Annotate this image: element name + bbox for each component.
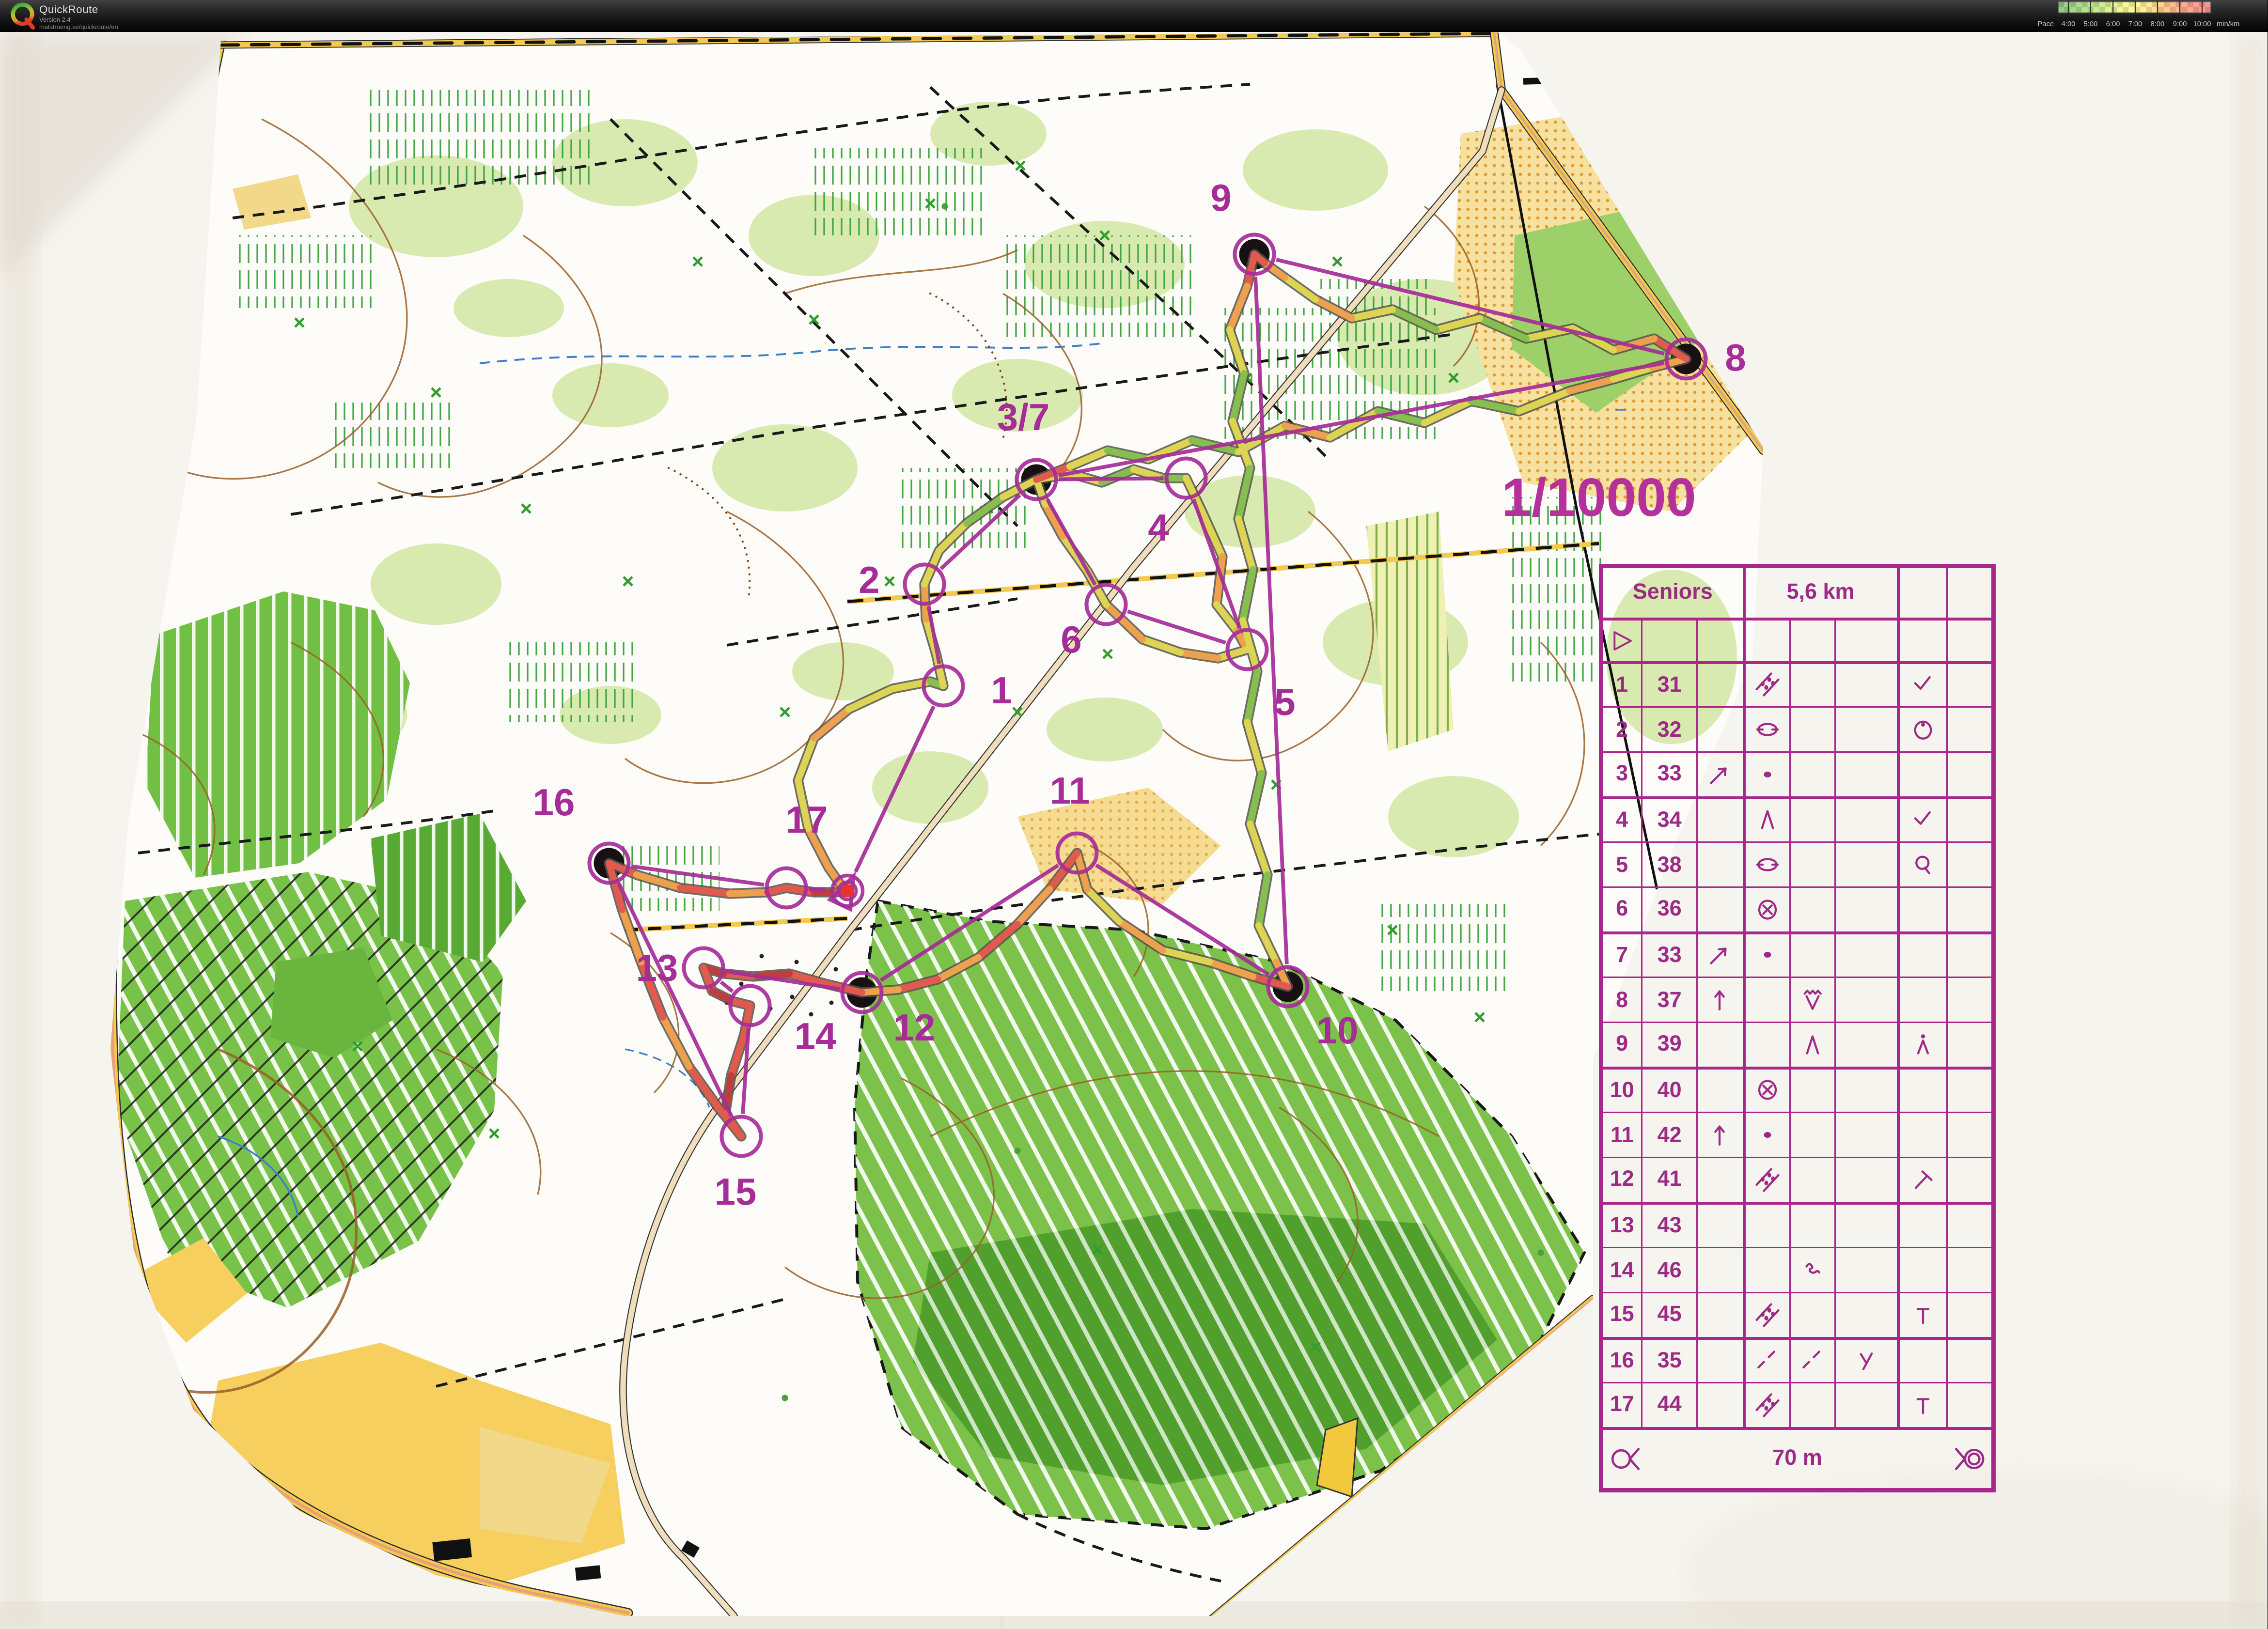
control-number-label: 14 <box>795 1015 837 1057</box>
control-order: 16 <box>1601 1338 1642 1383</box>
scanned-map-paper: 123/74568910111213141516171/10000 Senior… <box>0 32 2268 1629</box>
sym-reentrant-icon <box>1752 806 1782 835</box>
sym-arrow-ne-icon <box>1705 941 1735 970</box>
pace-tick-label: 8:00 <box>2151 20 2165 28</box>
card-row: 11 42 <box>1601 1113 1994 1158</box>
card-row: 7 33 <box>1601 932 1994 977</box>
control-order: 1 <box>1601 662 1642 707</box>
control-order: 5 <box>1601 842 1642 887</box>
pace-label: Pace <box>2038 20 2054 28</box>
sym-stony-ground-icon <box>1752 1300 1782 1329</box>
control-code: 40 <box>1642 1068 1697 1113</box>
control-code: 44 <box>1642 1383 1697 1428</box>
control-card-table: Seniors 5,6 km 1 31 2 32 3 33 <box>1599 564 1996 1492</box>
card-row: 5 38 <box>1601 842 1994 887</box>
control-code: 46 <box>1642 1248 1697 1293</box>
card-row: 2 32 <box>1601 707 1994 752</box>
sym-depression-icon <box>1752 715 1782 744</box>
sym-dash-ne-icon <box>1798 1346 1827 1375</box>
control-order: 8 <box>1601 977 1642 1023</box>
control-number-label: 13 <box>636 946 678 989</box>
pace-unit-label: min/km <box>2217 20 2240 28</box>
sym-stony-ground-icon <box>1752 1390 1782 1419</box>
sym-north-t-icon <box>1908 1300 1937 1329</box>
sym-junction-icon <box>1908 670 1937 699</box>
control-code: 33 <box>1642 932 1697 977</box>
control-code: 41 <box>1642 1158 1697 1203</box>
control-number-label: 3/7 <box>997 396 1049 438</box>
sym-knoll-icon <box>1752 1120 1782 1149</box>
control-number-label: 17 <box>786 798 828 841</box>
control-number-label: 6 <box>1061 618 1081 661</box>
control-order: 9 <box>1601 1023 1642 1068</box>
card-row: 4 34 <box>1601 797 1994 842</box>
sym-stony-ground-icon <box>1752 670 1782 699</box>
card-row: 3 33 <box>1601 752 1994 797</box>
finish-distance: 70 m <box>1772 1448 1822 1470</box>
control-order: 17 <box>1601 1383 1642 1428</box>
control-number-label: 5 <box>1274 681 1295 723</box>
sym-arrow-n-icon <box>1705 1120 1735 1149</box>
control-code: 35 <box>1642 1338 1697 1383</box>
card-row: 9 39 <box>1601 1023 1994 1068</box>
sym-arrow-n-icon <box>1705 985 1735 1014</box>
sym-knoll-icon <box>1752 760 1782 789</box>
sym-chevron-finish-icon <box>1949 1443 1987 1474</box>
control-order: 4 <box>1601 797 1642 842</box>
card-row: 6 36 <box>1601 887 1994 932</box>
control-number-label: 8 <box>1725 336 1746 379</box>
pace-tick-label: 9:00 <box>2174 20 2188 28</box>
control-order: 15 <box>1601 1293 1642 1338</box>
sym-reentrant-icon <box>1798 1030 1827 1059</box>
control-order: 14 <box>1601 1248 1642 1293</box>
control-number-label: 2 <box>859 559 879 601</box>
control-code: 34 <box>1642 797 1697 842</box>
pace-tick-label: 5:00 <box>2084 20 2098 28</box>
pace-tick-label: 10:00 <box>2194 20 2212 28</box>
control-code: 33 <box>1642 752 1697 797</box>
card-row: 13 43 <box>1601 1203 1994 1248</box>
control-code: 32 <box>1642 707 1697 752</box>
control-number-label: 12 <box>893 1006 936 1049</box>
card-row: 10 40 <box>1601 1068 1994 1113</box>
control-code: 37 <box>1642 977 1697 1023</box>
card-row: 8 37 <box>1601 977 1994 1023</box>
card-row: 17 44 <box>1601 1383 1994 1428</box>
title-bar: QuickRoute Version 2.4 matstroeng.se/qui… <box>0 0 2268 32</box>
sym-pit-icon <box>1908 715 1937 744</box>
pace-tick-label: 7:00 <box>2129 20 2143 28</box>
map-scale-text: 1/10000 <box>1502 467 1696 527</box>
control-order: 2 <box>1601 707 1642 752</box>
control-code: 31 <box>1642 662 1697 707</box>
sym-depression-icon <box>1752 850 1782 879</box>
card-start-row <box>1601 619 1994 662</box>
sym-cairn-icon <box>1908 1030 1937 1059</box>
card-row: 12 41 <box>1601 1158 1994 1203</box>
sym-knoll-icon <box>1752 941 1782 970</box>
control-code: 38 <box>1642 842 1697 887</box>
sym-circle-chevron-icon <box>1608 1443 1645 1474</box>
control-order: 7 <box>1601 932 1642 977</box>
quickroute-logo-icon <box>9 1 38 31</box>
sym-crossing-icon <box>1752 895 1782 924</box>
course-class: Seniors <box>1601 566 1744 619</box>
control-code: 36 <box>1642 887 1697 932</box>
card-row: 15 45 <box>1601 1293 1994 1338</box>
card-footer: 70 m <box>1601 1428 1994 1490</box>
sym-water-squiggle-icon <box>1798 1256 1827 1285</box>
sym-dash-ne-icon <box>1752 1346 1782 1375</box>
sym-spur-icon <box>1908 850 1937 879</box>
sym-junction-icon <box>1908 806 1937 835</box>
card-row: 16 35 <box>1601 1338 1994 1383</box>
control-order: 12 <box>1601 1158 1642 1203</box>
sym-y-branch-icon <box>1850 1346 1882 1375</box>
app-title: QuickRoute <box>39 3 98 16</box>
control-number-label: 10 <box>1316 1009 1359 1052</box>
app-version: Version 2.4 <box>39 16 71 23</box>
control-number-label: 9 <box>1210 176 1231 219</box>
control-code: 43 <box>1642 1203 1697 1248</box>
course-distance: 5,6 km <box>1744 566 1898 619</box>
card-row: 1 31 <box>1601 662 1994 707</box>
control-code: 42 <box>1642 1113 1697 1158</box>
control-number-label: 4 <box>1148 506 1169 549</box>
sym-bent-t-icon <box>1908 1165 1937 1194</box>
control-code: 39 <box>1642 1023 1697 1068</box>
control-number-label: 1 <box>991 669 1012 712</box>
control-number-label: 16 <box>533 781 575 823</box>
sym-arrow-ne-icon <box>1705 760 1735 789</box>
quickroute-window: QuickRoute Version 2.4 matstroeng.se/qui… <box>0 0 2268 1629</box>
sym-north-t-icon <box>1908 1390 1937 1419</box>
app-url: matstroeng.se/quickroute/en <box>39 24 118 31</box>
control-order: 11 <box>1601 1113 1642 1158</box>
control-order: 3 <box>1601 752 1642 797</box>
control-order: 10 <box>1601 1068 1642 1113</box>
sym-start-triangle-icon <box>1609 627 1635 653</box>
pace-tick-label: 6:00 <box>2107 20 2121 28</box>
control-code: 45 <box>1642 1293 1697 1338</box>
card-row: 14 46 <box>1601 1248 1994 1293</box>
control-order: 13 <box>1601 1203 1642 1248</box>
pace-tick-label: 4:00 <box>2062 20 2076 28</box>
sym-stony-ground-icon <box>1752 1165 1782 1194</box>
control-order: 6 <box>1601 887 1642 932</box>
control-number-label: 11 <box>1050 769 1090 812</box>
control-number-label: 15 <box>715 1170 757 1213</box>
card-header: Seniors 5,6 km <box>1601 566 1994 619</box>
sym-crossing-icon <box>1752 1076 1782 1105</box>
sym-gully-icon <box>1798 985 1827 1014</box>
